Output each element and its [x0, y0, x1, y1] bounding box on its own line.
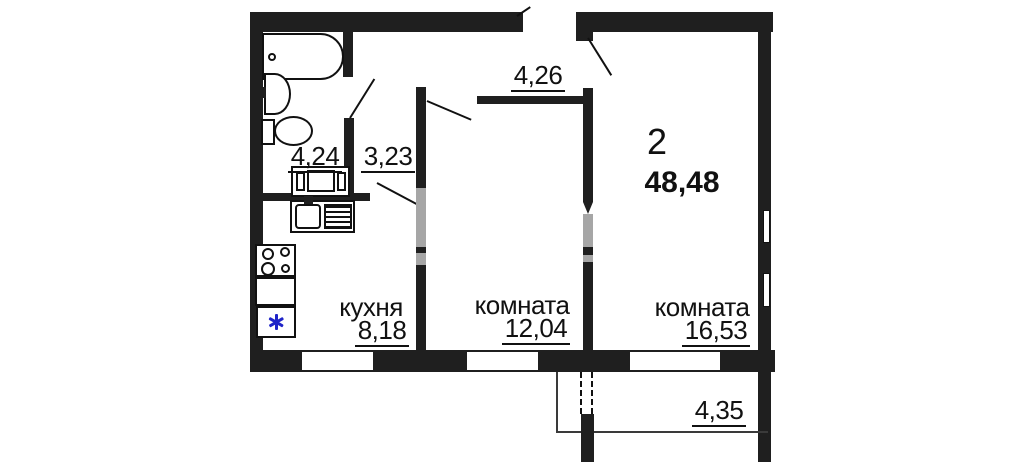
- wall-top-right: [576, 12, 773, 32]
- balcony-door-wall: [581, 414, 594, 462]
- room1-area-value: 12,04: [502, 315, 571, 345]
- balcony-left-line: [556, 372, 558, 433]
- balcony-area-label: 4,35: [687, 397, 751, 427]
- toilet-icon: [261, 119, 275, 145]
- room2-area-label: 16,53: [642, 317, 762, 347]
- wall-right-shaft-lower: [763, 273, 770, 307]
- balcony-door-dash-right: [591, 372, 593, 414]
- entry-door-leaf: [587, 37, 612, 75]
- rooms-divider-lower: [583, 262, 593, 350]
- rooms-divider-opening-2: [583, 255, 593, 262]
- snowflake-icon: [268, 314, 284, 330]
- balcony-area-value: 4,35: [692, 397, 747, 427]
- bathtub-drain: [268, 53, 276, 61]
- rooms-divider-opening: [583, 214, 593, 247]
- corridor-area-value: 3,23: [361, 143, 416, 173]
- stove-burner: [281, 264, 290, 273]
- total-area-label: 48,48: [632, 167, 732, 199]
- stove-burner: [261, 262, 275, 276]
- corridor-area-label: 3,23: [356, 143, 420, 173]
- kitchen-area-label: 8,18: [321, 317, 421, 347]
- balcony-door-dash-left: [580, 372, 582, 414]
- bathroom-area-value: 4,24: [288, 143, 343, 173]
- rooms-count-label: 2: [637, 123, 677, 161]
- kitchen-door-leaf: [377, 182, 418, 205]
- fridge-icon: [256, 306, 296, 338]
- wall-right-shaft-upper: [763, 210, 770, 243]
- stove-burner: [262, 248, 274, 260]
- hall-area-value: 4,26: [511, 62, 566, 92]
- bathroom-door-leaf: [349, 78, 375, 118]
- room1-area-label: 12,04: [462, 315, 582, 345]
- corridor-wall-opening-2: [416, 253, 426, 265]
- wall-top-left: [250, 12, 523, 32]
- rooms-divider-upper: [583, 88, 593, 202]
- room1-top-wall: [477, 96, 593, 104]
- bathroom-area-label: 4,24: [283, 143, 347, 173]
- bathroom-wall-vertical-upper: [343, 32, 353, 77]
- dish-drainer: [324, 204, 352, 229]
- hall-area-label: 4,26: [506, 62, 570, 92]
- vanity-center-section: [307, 170, 335, 192]
- wash-basin-icon: [264, 73, 291, 115]
- room2-area-value: 16,53: [682, 317, 751, 347]
- rooms-divider-mid: [583, 247, 593, 255]
- kitchen-lower-counter: [255, 277, 296, 306]
- floor-plan: 4,24 3,23 4,26 кухня 8,18 комната 12,04 …: [0, 0, 1024, 472]
- hall-door-leaf: [427, 100, 472, 121]
- kitchen-faucet: [304, 196, 313, 204]
- room1-window: [467, 352, 538, 370]
- stove-burner: [280, 247, 290, 257]
- corridor-wall-opening: [416, 188, 426, 247]
- kitchen-window: [302, 352, 373, 370]
- basin-tap: [255, 87, 266, 98]
- room2-window: [630, 352, 720, 370]
- rooms-divider-tip: [583, 202, 593, 214]
- kitchen-area-value: 8,18: [355, 317, 410, 347]
- vanity-left-section: [296, 172, 305, 191]
- kitchen-sink-icon: [295, 204, 321, 229]
- vanity-right-section: [337, 172, 346, 191]
